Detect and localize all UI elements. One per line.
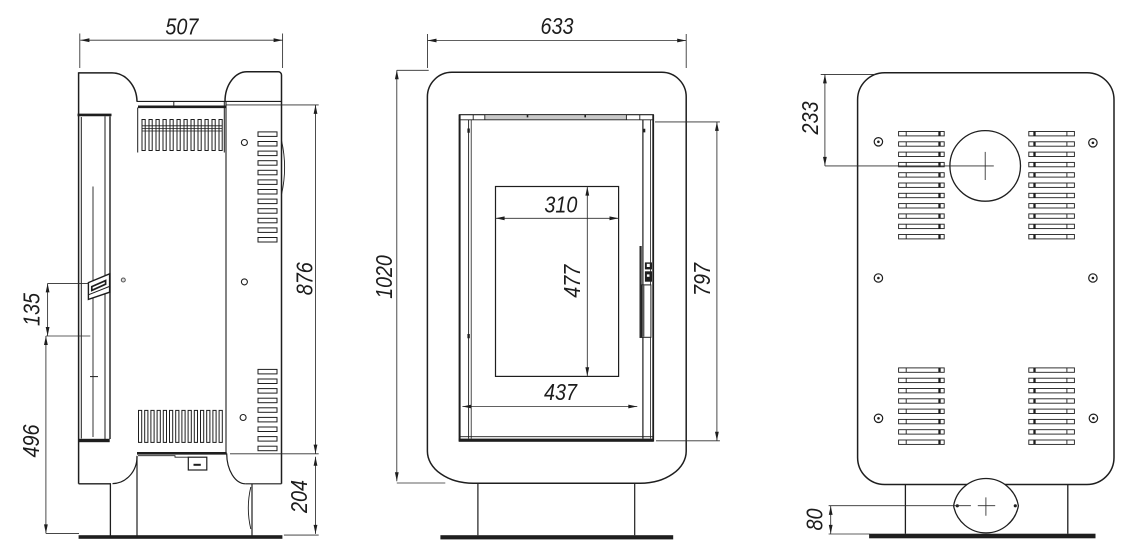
svg-text:633: 633 [541, 13, 574, 39]
svg-text:80: 80 [802, 508, 828, 530]
svg-text:135: 135 [19, 293, 45, 326]
svg-text:876: 876 [292, 262, 318, 295]
svg-text:496: 496 [18, 424, 44, 457]
svg-text:507: 507 [165, 13, 199, 39]
svg-text:797: 797 [689, 262, 715, 296]
svg-text:437: 437 [544, 379, 578, 405]
svg-text:310: 310 [544, 191, 577, 217]
svg-text:204: 204 [286, 480, 312, 514]
svg-text:1020: 1020 [371, 255, 397, 299]
svg-text:233: 233 [797, 101, 823, 135]
svg-text:477: 477 [559, 264, 585, 298]
